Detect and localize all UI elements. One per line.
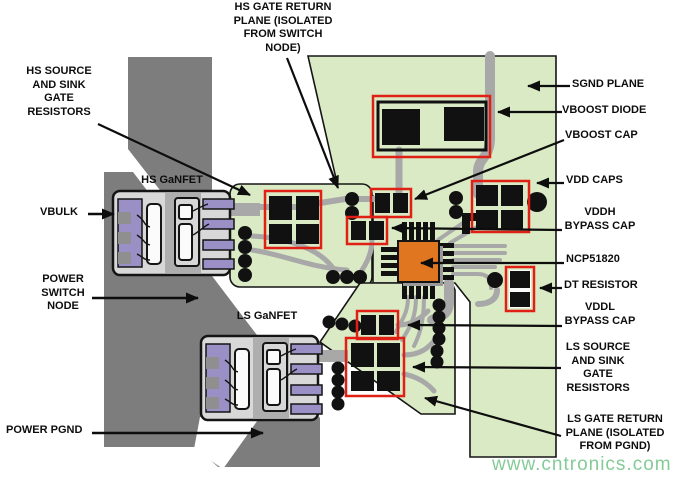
label-power-pgnd: POWER PGND	[6, 424, 82, 438]
label-vddh-bypass-cap: VDDH BYPASS CAP	[556, 206, 644, 233]
label-vboost-diode: VBOOST DIODE	[562, 104, 646, 118]
label-vddl-bypass-cap: VDDL BYPASS CAP	[556, 301, 644, 328]
watermark-text: www.cntronics.com	[492, 454, 672, 476]
label-vdd-caps: VDD CAPS	[566, 174, 623, 188]
dt-resistor-component	[509, 270, 531, 308]
label-hs-source-sink-gate-resistors: HS SOURCE AND SINK GATE RESISTORS	[6, 65, 112, 119]
label-vbulk: VBULK	[40, 206, 78, 220]
label-vboost-cap: VBOOST CAP	[565, 129, 638, 143]
hs-ganfet-footprint	[113, 191, 234, 275]
label-ncp51820: NCP51820	[566, 253, 620, 267]
label-power-switch-node: POWER SWITCH NODE	[18, 273, 108, 314]
label-ls-ganfet: LS GaNFET	[230, 310, 304, 324]
label-ls-source-sink-gate-resistors: LS SOURCE AND SINK GATE RESISTORS	[554, 341, 642, 395]
pcb-layout-diagram: HS GATE RETURN PLANE (ISOLATED FROM SWIT…	[0, 0, 680, 485]
label-hs-ganfet: HS GaNFET	[135, 174, 209, 188]
label-ls-gate-return-plane: LS GATE RETURN PLANE (ISOLATED FROM PGND…	[552, 413, 678, 454]
label-hs-gate-return-plane: HS GATE RETURN PLANE (ISOLATED FROM SWIT…	[220, 1, 346, 55]
label-dt-resistor: DT RESISTOR	[564, 279, 638, 293]
ls-ganfet-footprint	[201, 336, 322, 420]
label-sgnd-plane: SGND PLANE	[572, 78, 644, 92]
